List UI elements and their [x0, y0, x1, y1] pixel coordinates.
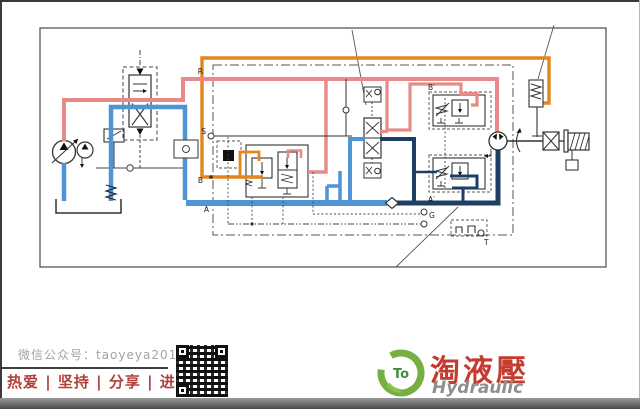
orifice-box	[217, 141, 241, 168]
wechat-account-text: 微信公众号：taoyeya2014	[18, 346, 186, 363]
relief-valve-b-prime	[429, 92, 491, 129]
hydraulic-motor	[489, 132, 507, 150]
port-label-b: B	[198, 176, 203, 185]
diagram-frame	[40, 28, 606, 267]
qr-code	[176, 345, 228, 397]
pump-group	[52, 129, 183, 171]
port-label-t: T	[483, 238, 489, 247]
photo-edge-top	[0, 0, 640, 2]
port-label-b-prime: B′	[428, 83, 435, 92]
slogan-text: 热爱 | 坚持 | 分享 | 进步	[7, 371, 192, 392]
relief-valve-a-prime	[429, 155, 491, 192]
qr-finder-icon	[176, 384, 189, 397]
scanned-schematic-page: R S B A B′ A′ G T 微信公众号：taoyeya2014 热爱 |…	[0, 0, 640, 409]
port-label-s: S	[201, 127, 206, 136]
logo-swirl-icon: To	[374, 346, 430, 402]
brand-logo: To	[374, 346, 430, 402]
callout-lines	[352, 25, 554, 267]
port-label-a-prime: A′	[428, 195, 435, 204]
qr-finder-icon	[215, 345, 228, 358]
qr-finder-icon	[176, 345, 189, 358]
main-control-valve	[364, 87, 381, 178]
brand-name-en: Hydraulic	[432, 378, 523, 398]
return-check-box	[174, 140, 198, 158]
port-b-junction	[209, 175, 213, 179]
footer-divider	[0, 367, 168, 369]
port-label-r: R	[198, 67, 203, 76]
junction-diamond	[386, 198, 399, 209]
port-label-g: G	[429, 211, 435, 220]
photo-edge-bottom	[0, 398, 640, 409]
photo-edge-left	[0, 0, 2, 400]
logo-badge-text: To	[393, 367, 409, 382]
port-label-a: A	[204, 205, 210, 214]
tank-symbol	[56, 199, 121, 213]
